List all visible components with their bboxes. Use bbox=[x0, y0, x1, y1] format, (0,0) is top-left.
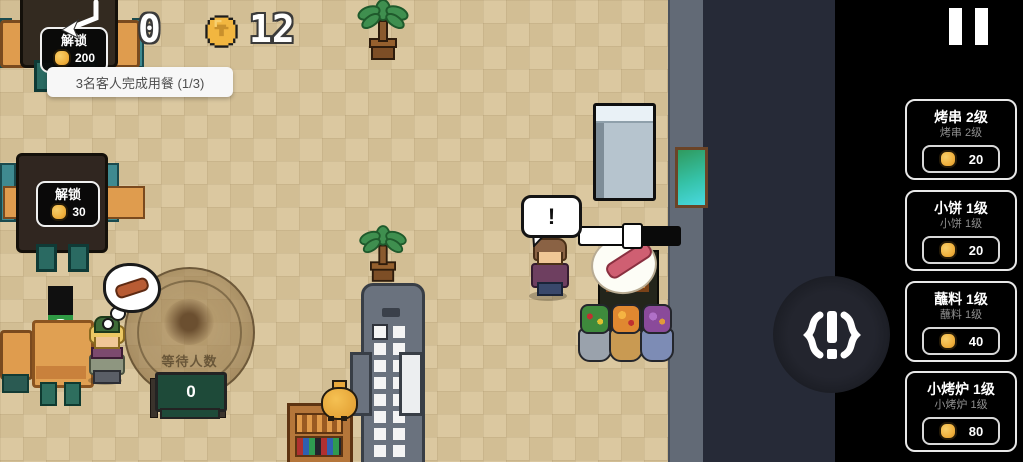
vending-machine-door bbox=[399, 352, 423, 416]
shop-item-small-grill[interactable]: 小烤炉 1级 小烤炉 1级 80 bbox=[905, 371, 1017, 452]
shop-item-subtitle: 烤串 2级 bbox=[940, 127, 982, 140]
coin-icon bbox=[939, 150, 957, 168]
fridge bbox=[593, 103, 656, 201]
pot-produce bbox=[611, 304, 641, 334]
palm-tree bbox=[355, 0, 411, 61]
pot-produce bbox=[642, 304, 672, 334]
dark-area bbox=[703, 0, 835, 462]
thought-bubble-dot bbox=[102, 318, 114, 330]
coin-icon bbox=[939, 422, 957, 440]
unlock-table-button-30[interactable]: 解锁 30 bbox=[36, 181, 100, 227]
stool bbox=[36, 244, 57, 272]
tutorial-pointer-icon bbox=[60, 0, 112, 54]
vending-machine-buttons bbox=[374, 326, 386, 338]
shop-item-subtitle: 小饼 1级 bbox=[940, 218, 982, 231]
pot-produce bbox=[580, 304, 610, 334]
lantern-foot bbox=[328, 416, 334, 421]
shop-item-skewer[interactable]: 烤串 2级 烤串 2级 20 bbox=[905, 99, 1017, 180]
table-edge bbox=[36, 366, 86, 379]
shop-item-title: 蘸料 1级 bbox=[934, 291, 988, 307]
sign-base bbox=[160, 408, 220, 419]
game-screen: 等待人数 0 bbox=[0, 0, 1023, 462]
bench bbox=[0, 330, 33, 380]
coin-icon bbox=[203, 13, 240, 50]
sizzle-exclamation-icon bbox=[800, 303, 864, 367]
cook-action-button[interactable] bbox=[773, 276, 890, 393]
speech-bubble: ! bbox=[521, 195, 582, 238]
queue-label: 等待人数 bbox=[126, 351, 253, 370]
chef-stool bbox=[93, 370, 121, 384]
pause-button[interactable] bbox=[942, 4, 994, 48]
bench-base bbox=[2, 374, 29, 393]
bench bbox=[104, 186, 145, 219]
coin-icon bbox=[939, 241, 957, 259]
table-leg bbox=[40, 382, 57, 406]
shop-item-subtitle: 蘸料 1级 bbox=[940, 309, 982, 322]
shop-item-title: 小饼 1级 bbox=[934, 200, 988, 216]
vending-machine-label bbox=[382, 308, 400, 317]
pause-icon bbox=[949, 8, 962, 45]
buy-button[interactable]: 20 bbox=[922, 145, 1000, 173]
price: 20 bbox=[969, 152, 983, 167]
produce-pot-greens bbox=[578, 304, 608, 360]
lantern bbox=[321, 387, 358, 420]
price: 20 bbox=[969, 243, 983, 258]
thought-bubble bbox=[103, 263, 161, 313]
price: 80 bbox=[969, 424, 983, 439]
shop-item-subtitle: 小烤炉 1级 bbox=[934, 399, 987, 412]
table-leg bbox=[64, 382, 81, 406]
customer-face bbox=[537, 252, 563, 265]
shop-item-sauce[interactable]: 蘸料 1级 蘸料 1级 40 bbox=[905, 281, 1017, 362]
produce-pot-plums bbox=[640, 304, 670, 360]
shop-item-title: 烤串 2级 bbox=[934, 109, 988, 125]
buy-button[interactable]: 20 bbox=[922, 236, 1000, 264]
price: 40 bbox=[969, 334, 983, 349]
pause-icon bbox=[975, 8, 988, 45]
customer-legs bbox=[537, 282, 563, 296]
coin-balance: 12 bbox=[249, 10, 295, 48]
coin-icon bbox=[50, 203, 68, 221]
objective-tooltip: 3名客人完成用餐 (1/3) bbox=[47, 67, 233, 97]
sausage-icon bbox=[114, 276, 151, 300]
queue-count-board: 0 bbox=[155, 372, 227, 412]
palm-tree bbox=[357, 221, 409, 285]
shop-item-title: 小烤炉 1级 bbox=[927, 381, 995, 397]
cooking-progress-bar bbox=[578, 226, 681, 246]
customer-character bbox=[527, 238, 571, 300]
unlock-label: 解锁 bbox=[55, 188, 81, 202]
unlock-cost: 30 bbox=[50, 203, 85, 221]
coin-icon bbox=[939, 332, 957, 350]
banner-flag bbox=[48, 286, 73, 315]
shop-item-flatbread[interactable]: 小饼 1级 小饼 1级 20 bbox=[905, 190, 1017, 271]
stool bbox=[68, 244, 89, 272]
served-customers-count: 0 bbox=[138, 10, 161, 48]
lantern-foot bbox=[341, 416, 347, 421]
produce-pot-oranges bbox=[609, 304, 639, 360]
shelf-row bbox=[295, 436, 343, 457]
cooking-progress-knob bbox=[622, 223, 643, 249]
wall-picture bbox=[675, 147, 708, 208]
buy-button[interactable]: 40 bbox=[922, 327, 1000, 355]
fridge-door-top bbox=[596, 106, 653, 123]
wok-center bbox=[164, 299, 214, 345]
buy-button[interactable]: 80 bbox=[922, 417, 1000, 445]
unlock-cost-value: 30 bbox=[72, 205, 85, 219]
chef-face bbox=[94, 337, 120, 349]
